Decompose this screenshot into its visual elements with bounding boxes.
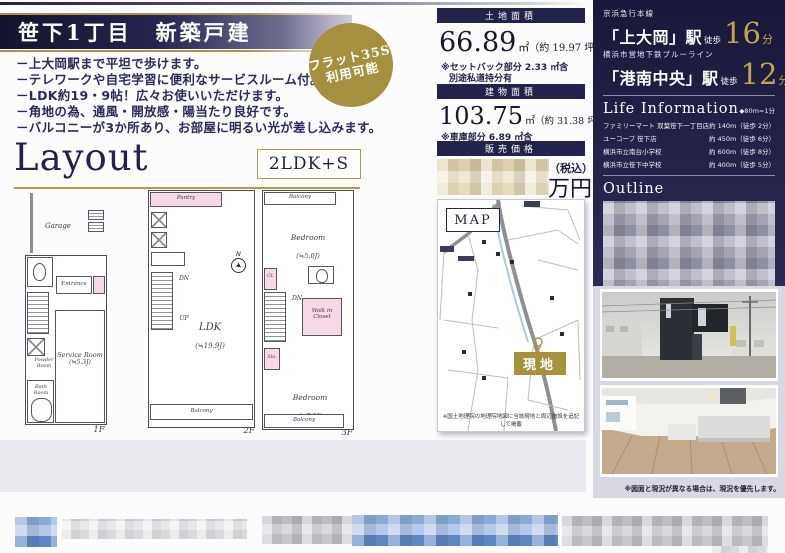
floor1-label: 1F xyxy=(90,426,108,436)
kitchen-sink-icon xyxy=(151,212,167,228)
pantry-label: Pantry xyxy=(150,195,222,201)
station2-minutes-unit: 分 xyxy=(778,72,785,88)
feature-item: －バルコニーが3か所あり、お部屋に明るい光が差し込みます。 xyxy=(16,120,426,136)
land-area-value-row: 66.89 ㎡ （約 19.97 坪） xyxy=(439,27,587,58)
interior-photo xyxy=(600,385,778,477)
shoe-cabinet xyxy=(93,276,105,294)
toilet-icon-3f xyxy=(316,269,328,283)
bedroom1-size: (≒5.0J) xyxy=(296,252,319,260)
entrance-label: Entrance xyxy=(56,281,92,287)
facility-bar: Facility ⌂ 2面バルコニー WIC ウォークインクローゼット ♨ 温水… xyxy=(0,440,586,492)
bedroom2-name: Bedroom xyxy=(293,393,327,402)
company-text-redacted xyxy=(62,519,247,539)
life-item-distance: 約 600m（徒歩 8分） xyxy=(709,146,775,156)
station2-walk: 徒歩 xyxy=(721,75,738,87)
washstand-1f xyxy=(27,338,45,356)
storage-3f-label: Sto. xyxy=(264,355,280,360)
floor3-label: 3F xyxy=(338,429,356,439)
powder-room-label: Powder Room xyxy=(30,358,58,370)
garage-shutter-icon xyxy=(88,222,104,232)
life-item: ファミリーマート 双葉笹下一丁目店 約 140m（徒歩 2分） xyxy=(603,120,775,130)
life-item-distance: 約 400m（徒歩 5分） xyxy=(709,159,775,169)
toilet-icon-1f xyxy=(33,263,46,281)
panel-divider xyxy=(603,95,775,96)
gold-line-bottom xyxy=(0,50,352,52)
balcony-2f-label: Balcony xyxy=(150,408,253,414)
interior-photo-illustration xyxy=(602,387,776,475)
bathtub-icon xyxy=(31,398,52,422)
life-information-title: Life Information xyxy=(603,101,739,117)
life-item-distance: 約 450m（徒歩 6分） xyxy=(709,133,775,143)
life-item: 横浜市立南台小学校 約 600m（徒歩 8分） xyxy=(603,146,775,156)
exterior-photo xyxy=(600,289,778,381)
station1-walk: 徒歩 xyxy=(704,34,721,46)
ldk-name: LDK xyxy=(199,322,221,333)
life-information-header: Life Information ◆80m=1分 xyxy=(603,101,775,117)
life-item-name: ファミリーマート 双葉笹下一丁目店 xyxy=(603,120,709,130)
land-area-value: 66.89 xyxy=(439,27,516,58)
compass-n-label: N xyxy=(236,250,241,258)
bath-room-label: Bath Room xyxy=(29,385,53,397)
life-item: ユーコープ 笹下店 約 450m（徒歩 6分） xyxy=(603,133,775,143)
station1-name: 「上大岡」駅 xyxy=(603,24,702,48)
service-room-name: Service Room xyxy=(57,351,103,359)
station1-minutes: 16 xyxy=(724,19,761,48)
garage-label: Garage xyxy=(38,222,78,230)
service-room-label: Service Room (≒5.3J) xyxy=(56,352,104,367)
life-item-name: 横浜市立笹下中学校 xyxy=(603,159,662,169)
exterior-photo-illustration xyxy=(602,291,776,379)
photo-disclaimer: ※図面と現況が異なる場合は、現況を優先します。 xyxy=(625,483,780,493)
price-header: 販売価格 xyxy=(437,141,585,156)
land-note-2: 別途私道持分有 xyxy=(441,71,512,84)
outline-title: Outline xyxy=(603,181,775,197)
land-area-header: 土地面積 xyxy=(437,8,585,23)
walk-in-closet-label: Walk in Closet xyxy=(303,308,341,321)
station1-minutes-unit: 分 xyxy=(762,31,773,47)
bedroom1-name: Bedroom xyxy=(291,233,325,242)
life-item-distance: 約 140m（徒歩 2分） xyxy=(709,120,775,130)
stairs-3f xyxy=(264,292,286,342)
ldk-label: LDK (≒19.9J) xyxy=(185,316,235,353)
photo-panel: ※図面と現況が異なる場合は、現況を優先します。 xyxy=(593,286,785,498)
service-room-size: (≒5.3J) xyxy=(69,359,91,366)
building-area-value-row: 103.75 ㎡ （約 31.38 坪） xyxy=(439,102,587,130)
life-item-name: 横浜市立南台小学校 xyxy=(603,146,662,156)
life-information-scale-note: ◆80m=1分 xyxy=(739,105,775,115)
access-panel: 京浜急行本線 「上大岡」駅 徒歩 16 分 横浜市営地下鉄ブルーライン 「港南中… xyxy=(593,0,785,286)
map-caption: ※国土地理院の地理院地図に当該現地と周辺施設を追記して掲載 xyxy=(440,412,582,428)
flyer-page: 笹下1丁目 新築戸建 －上大岡駅まで平坦で歩けます。 －テレワークや自宅学習に便… xyxy=(0,0,785,553)
bedroom1-label: Bedroom (≒5.0J) xyxy=(276,226,340,263)
station2-minutes: 12 xyxy=(741,60,778,89)
layout-underline xyxy=(14,187,360,189)
page-title: 笹下1丁目 新築戸建 xyxy=(18,17,252,47)
outline-redacted-mosaic xyxy=(603,201,775,291)
garage-shutter-icon xyxy=(88,210,104,220)
map-illustration xyxy=(438,200,584,431)
building-area-value: 103.75 xyxy=(439,102,523,130)
panel-divider xyxy=(603,175,775,176)
building-area-unit: ㎡ xyxy=(525,112,535,127)
station2-name: 「港南中央」駅 xyxy=(603,65,719,89)
boundary-wall xyxy=(30,193,33,253)
stairs-1f xyxy=(27,292,49,334)
building-area-header: 建物面積 xyxy=(437,84,585,99)
floor2-label: 2F xyxy=(240,427,258,437)
company-logo-redacted xyxy=(15,517,57,547)
plan-type-badge: 2LDK+S xyxy=(257,149,361,179)
kitchen-stove-icon xyxy=(151,232,167,248)
company-contact-redacted xyxy=(352,515,558,546)
site-location-badge: 現地 xyxy=(514,352,566,375)
balcony-3f-top-label: Balcony xyxy=(264,194,336,200)
feature-item: －角地の為、通風・開放感・陽当たり良好です。 xyxy=(16,104,426,120)
ldk-size: (≒19.9J) xyxy=(195,342,225,350)
land-area-unit: ㎡ xyxy=(518,39,529,55)
top-accent-strip xyxy=(0,2,585,5)
layout-title: Layout xyxy=(14,136,149,179)
station1-row: 「上大岡」駅 徒歩 16 分 xyxy=(603,19,775,48)
title-bar: 笹下1丁目 新築戸建 xyxy=(0,15,352,49)
compass-icon: ➤ xyxy=(231,258,246,273)
station2-row: 「港南中央」駅 徒歩 12 分 xyxy=(603,60,775,89)
map-box: MAP 現地 ※国土地理院の地理院地図に当該現地と周辺施設を追記して掲載 xyxy=(437,199,585,432)
dn-label-2f: DN xyxy=(175,276,193,283)
kitchen-counter xyxy=(151,252,185,266)
closet-3f-label: CL xyxy=(264,274,277,279)
company-license-redacted-ext xyxy=(712,546,768,553)
price-redacted-mosaic xyxy=(437,159,549,195)
map-title: MAP xyxy=(446,208,500,232)
balcony-3f-bottom-label: Balcony xyxy=(264,417,344,423)
company-license-redacted xyxy=(562,516,768,546)
life-item-name: ユーコープ 笹下店 xyxy=(603,133,657,143)
stairs-2f xyxy=(151,272,173,330)
life-item: 横浜市立笹下中学校 約 400m（徒歩 5分） xyxy=(603,159,775,169)
